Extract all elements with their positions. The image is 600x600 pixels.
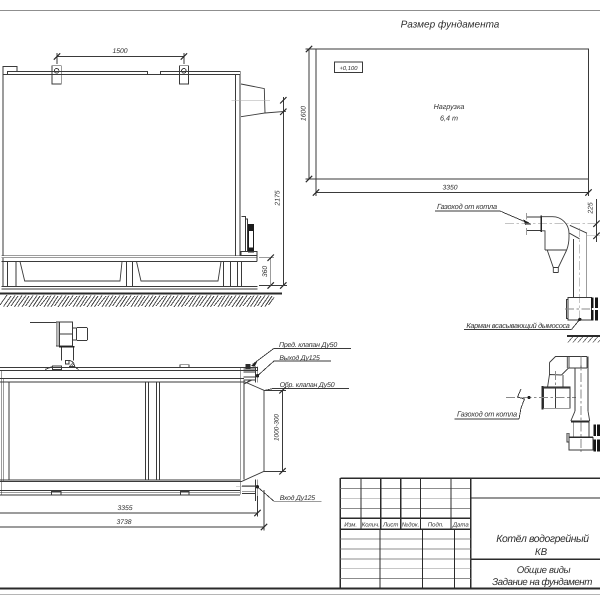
svg-text:3350: 3350: [442, 185, 457, 192]
svg-text:Карман всасывающий дымососа: Карман всасывающий дымососа: [466, 321, 569, 330]
svg-text:6,4 т: 6,4 т: [440, 114, 458, 123]
svg-text:Лист: Лист: [382, 522, 398, 529]
svg-text:1000-300: 1000-300: [273, 414, 280, 441]
svg-text:Газоход от котла: Газоход от котла: [457, 409, 517, 418]
svg-text:Нагрузка: Нагрузка: [434, 102, 465, 111]
svg-text:№док.: №док.: [402, 522, 420, 529]
svg-text:3355: 3355: [117, 505, 132, 512]
svg-text:225: 225: [588, 202, 595, 215]
svg-text:360: 360: [262, 266, 269, 278]
svg-text:2175: 2175: [275, 190, 282, 206]
svg-text:Задание на фундамент: Задание на фундамент: [492, 577, 592, 588]
svg-text:Размер фундамента: Размер фундамента: [401, 20, 500, 31]
svg-text:Подп.: Подп.: [428, 522, 444, 529]
svg-text:+0,100: +0,100: [340, 65, 359, 72]
svg-text:1600: 1600: [300, 106, 307, 121]
svg-text:Обр. клапан Ду50: Обр. клапан Ду50: [280, 381, 335, 389]
svg-text:Общие виды: Общие виды: [517, 565, 571, 576]
svg-text:3738: 3738: [116, 519, 131, 526]
svg-text:1500: 1500: [112, 48, 127, 55]
svg-text:Пред. клапан Ду50: Пред. клапан Ду50: [279, 341, 337, 349]
svg-text:Колич.: Колич.: [362, 522, 380, 529]
svg-text:Дата: Дата: [452, 522, 469, 529]
svg-text:Газоход от котла: Газоход от котла: [437, 202, 497, 211]
svg-text:Изм.: Изм.: [344, 522, 357, 529]
svg-text:Котёл водогрейный: Котёл водогрейный: [496, 534, 589, 545]
svg-text:КВ: КВ: [535, 547, 548, 558]
